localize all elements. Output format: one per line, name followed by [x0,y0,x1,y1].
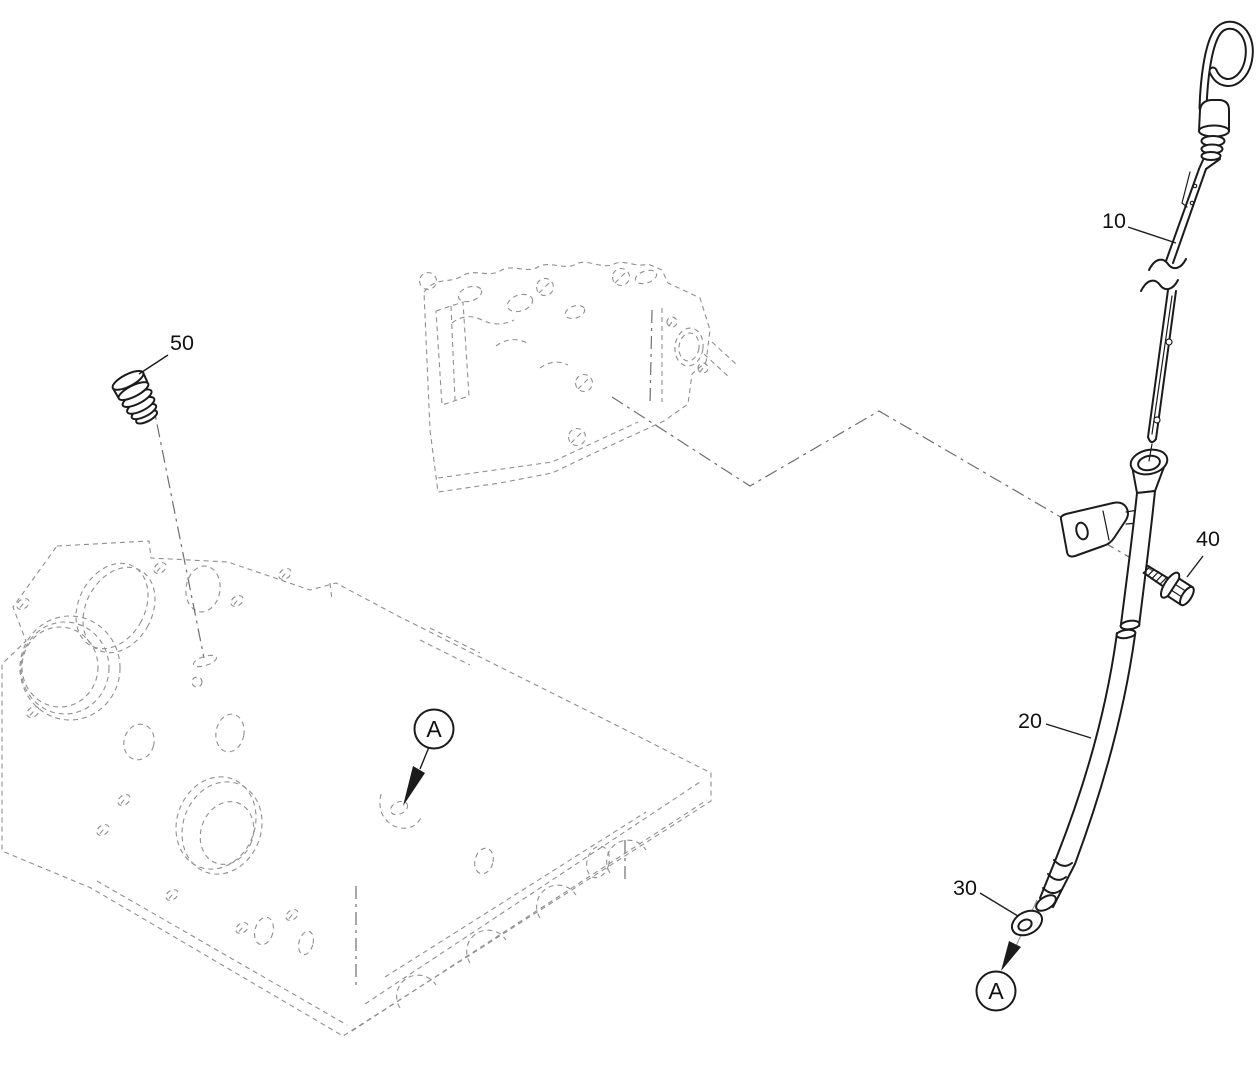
rod-clip [1182,172,1190,207]
blade-hole-2 [1154,417,1160,423]
callout-50-label[interactable]: 50 [170,331,194,355]
callout-30: 30 [953,876,1018,916]
block-bolt-holes [17,563,298,934]
view-a2-arrow [1001,941,1021,971]
callout-20: 20 [1018,709,1091,738]
block-boss-a [380,794,421,828]
block-edge-lines [97,583,707,1031]
callout-40: 40 [1187,527,1220,577]
callout-40-label[interactable]: 40 [1196,527,1220,551]
callout-20-leader [1046,724,1091,738]
view-a1-leader [420,747,429,769]
blade-hole-1 [1166,339,1172,345]
rod-blade-crease [1152,296,1172,434]
callout-50: 50 [139,331,194,374]
view-a1-arrow [403,766,425,806]
callout-20-label[interactable]: 20 [1018,709,1042,733]
centerlines [152,397,1153,669]
rod-upper [1166,169,1206,263]
tube-lower [1040,633,1135,907]
callout-10: 10 [1102,209,1176,243]
block-outline [2,541,711,1036]
view-marker-a-tube: A [977,941,1022,1011]
plug-centerline [152,399,204,658]
bracket-part [1061,503,1139,557]
rod-break-symbol [1141,259,1186,291]
callout-10-label[interactable]: 10 [1102,209,1126,233]
dipstick-part [1141,25,1249,461]
handle-loop [1203,25,1249,108]
callout-40-leader [1187,556,1203,577]
view-marker-a-block: A [403,710,454,807]
callout-10-leader [1128,227,1176,243]
cap-bottom [1199,126,1229,137]
cap-ring-3 [1202,152,1221,160]
callout-30-leader [980,893,1018,916]
view-a2-label[interactable]: A [988,978,1004,1004]
callout-30-label[interactable]: 30 [953,876,977,900]
head-centerline [650,310,652,405]
callout-50-leader [139,355,168,374]
parts-diagram: 10 20 30 40 50 A A [0,0,1257,1069]
bracket-plate [1061,503,1128,557]
engine-block-ghost [2,541,711,1036]
head-outline [424,262,710,492]
block-boss-a-hole [388,799,409,817]
tube-tip [1033,892,1058,914]
plug-hole [192,653,218,669]
view-a1-label[interactable]: A [426,716,442,742]
head-bolt-holes [420,269,709,446]
cylinder-head-ghost [420,262,738,492]
head-port-oval [672,326,705,368]
head-port-oval-inner [677,332,701,363]
